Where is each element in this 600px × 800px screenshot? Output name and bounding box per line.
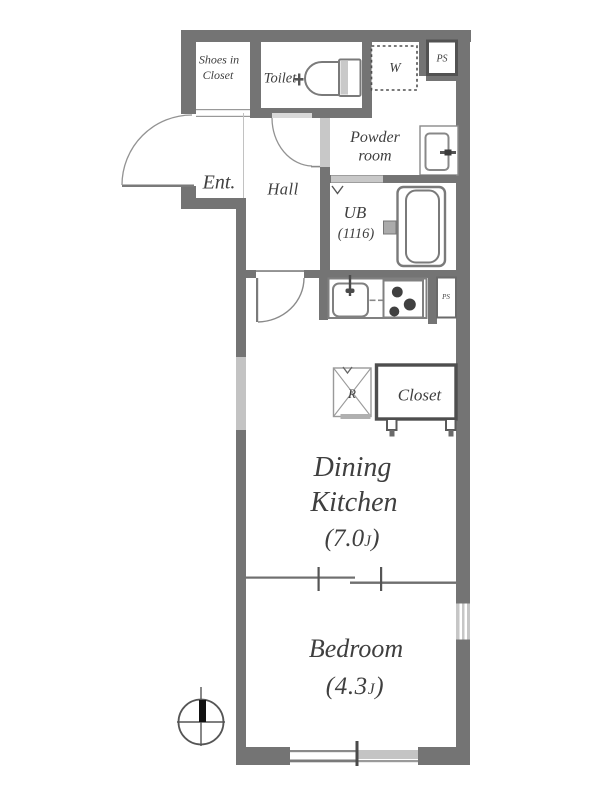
svg-text:Shoes in: Shoes in — [199, 53, 239, 67]
svg-text:(4.3J): (4.3J) — [326, 673, 384, 700]
svg-text:Dining: Dining — [313, 452, 392, 483]
svg-text:W: W — [389, 60, 402, 75]
svg-text:Closet: Closet — [398, 386, 443, 405]
svg-text:Kitchen: Kitchen — [309, 487, 397, 518]
svg-text:Powder: Powder — [349, 129, 401, 146]
svg-text:Closet: Closet — [203, 68, 234, 82]
svg-text:PS: PS — [441, 293, 450, 301]
svg-text:Hall: Hall — [266, 180, 298, 199]
svg-text:Toilet: Toilet — [264, 71, 297, 87]
svg-text:(1116): (1116) — [338, 226, 375, 242]
svg-text:(7.0J): (7.0J) — [325, 525, 380, 552]
svg-text:room: room — [358, 148, 391, 165]
svg-text:PS: PS — [435, 54, 447, 65]
svg-text:Bedroom: Bedroom — [309, 634, 403, 663]
svg-text:Ent.: Ent. — [202, 172, 236, 194]
svg-text:UB: UB — [344, 203, 367, 222]
svg-text:R: R — [347, 386, 356, 401]
